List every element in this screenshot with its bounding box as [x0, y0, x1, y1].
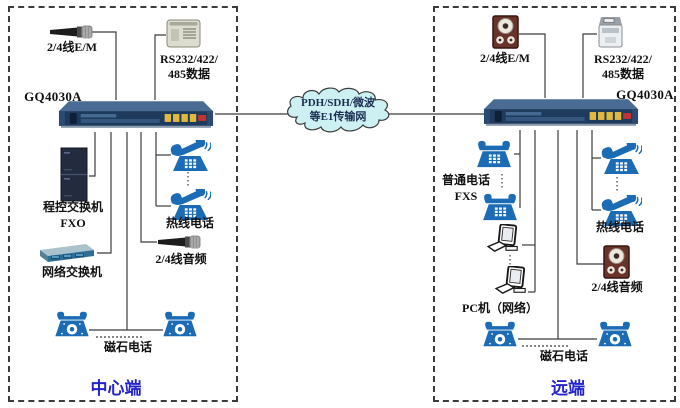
lan-switch-label: 网络交换机 [30, 266, 114, 279]
pbx-cabinet-icon [60, 147, 88, 202]
audio-label: 2/4线音频 [584, 281, 650, 294]
em-audio-label: 2/4线E/M [472, 52, 538, 65]
pc-label: PC机（网络） [456, 302, 544, 315]
magneto-phone-icon [54, 310, 90, 338]
fxs-phone-icon [474, 139, 514, 169]
serial-device-icon [597, 16, 624, 49]
hotline-phone-icon [169, 140, 211, 172]
magneto-label: 磁石电话 [532, 350, 596, 363]
hotline-label: 热线电话 [158, 217, 222, 230]
fxs-label-line2: FXS [436, 190, 496, 203]
pc-icon [494, 266, 532, 296]
remote-site-title: 远端 [536, 374, 600, 399]
speaker-em-icon [492, 15, 519, 49]
speaker-audio-icon [603, 244, 630, 280]
multiplexer-rack-icon [482, 96, 640, 132]
magneto-phone-icon [597, 320, 633, 348]
audio-label: 2/4线音频 [142, 253, 220, 266]
fxs-label-line1: 普通电话 [436, 174, 496, 187]
serial-device-icon [166, 19, 201, 48]
serial-label-line1: RS232/422/ [588, 53, 658, 66]
lan-switch-icon [34, 242, 96, 264]
topology-diagram: 2/4线E/M RS232/422/ 485数据 GQ4030A 程控交换机 F… [0, 0, 680, 408]
multiplexer-rack-icon [57, 98, 215, 134]
microphone-em-icon [48, 24, 94, 40]
hotline-phone-icon [600, 143, 642, 175]
serial-label-line1: RS232/422/ [148, 53, 230, 66]
hotline-label: 热线电话 [588, 221, 652, 234]
microphone-audio-icon [156, 234, 202, 250]
pc-icon [486, 224, 524, 254]
magneto-label: 磁石电话 [96, 341, 160, 354]
pbx-label-line2: FXO [34, 217, 112, 230]
serial-label-line2: 485数据 [148, 68, 230, 81]
center-site-title: 中心端 [82, 374, 150, 399]
magneto-phone-icon [162, 310, 198, 338]
serial-label-line2: 485数据 [588, 68, 658, 81]
em-audio-label: 2/4线E/M [36, 41, 108, 54]
cloud-label-line2: 等E1传输网 [288, 108, 388, 124]
pbx-label-line1: 程控交换机 [34, 201, 112, 214]
magneto-phone-icon [482, 320, 518, 348]
